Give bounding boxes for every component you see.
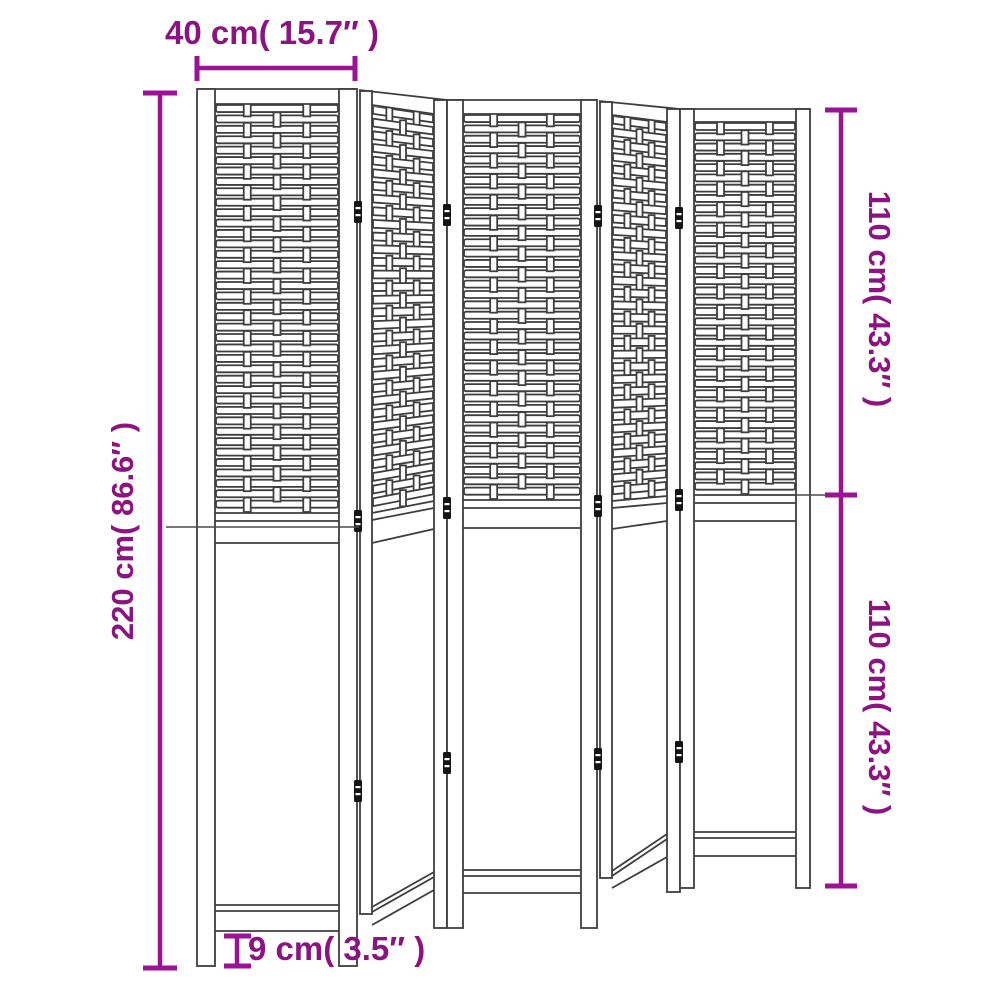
dimension-total-height: 220 cm( 86.6″ ) <box>105 93 177 968</box>
hinge-icon <box>354 201 362 223</box>
hinge-icon <box>443 497 451 519</box>
total-height-label: 220 cm( 86.6″ ) <box>105 422 140 640</box>
divider-panel-5 <box>680 109 810 888</box>
divider-panel-4-lattice <box>613 115 666 498</box>
lower-section-height-label: 110 cm( 43.3″ ) <box>862 599 897 816</box>
divider-panel-5-lattice <box>695 120 795 494</box>
divider-panel-1-lattice <box>216 102 338 512</box>
hinge-icon <box>675 741 683 763</box>
divider-panel-3-lattice <box>464 112 580 499</box>
hinge-icon <box>594 205 602 227</box>
upper-section-height-label: 110 cm( 43.3″ ) <box>862 191 897 408</box>
hinge-icon <box>594 748 602 770</box>
hinge-icon <box>675 207 683 229</box>
product-dimension-diagram: 40 cm( 15.7″ ) 220 cm( 86.6″ ) 110 cm( 4… <box>0 0 1000 1000</box>
divider-panel-2-lattice <box>373 106 433 506</box>
leg-height-label: 9 cm( 3.5″ ) <box>248 930 425 967</box>
divider-panel-4 <box>599 101 680 892</box>
hinge-icon <box>354 510 362 532</box>
panel-width-label: 40 cm( 15.7″ ) <box>165 14 379 51</box>
divider-panel-3 <box>447 100 597 928</box>
hinge-icon <box>675 489 683 511</box>
dimension-panel-width: 40 cm( 15.7″ ) <box>165 14 379 81</box>
room-divider-dimension-figure: 40 cm( 15.7″ ) 220 cm( 86.6″ ) 110 cm( 4… <box>0 0 1000 1000</box>
dimension-section-heights: 110 cm( 43.3″ ) 110 cm( 43.3″ ) <box>825 110 897 886</box>
hinge-icon <box>443 752 451 774</box>
hinge-icon <box>443 204 451 226</box>
hinge-icon <box>594 495 602 517</box>
hinge-icon <box>354 780 362 802</box>
divider-panel-2 <box>359 90 447 928</box>
dimension-leg-height: 9 cm( 3.5″ ) <box>224 930 425 967</box>
